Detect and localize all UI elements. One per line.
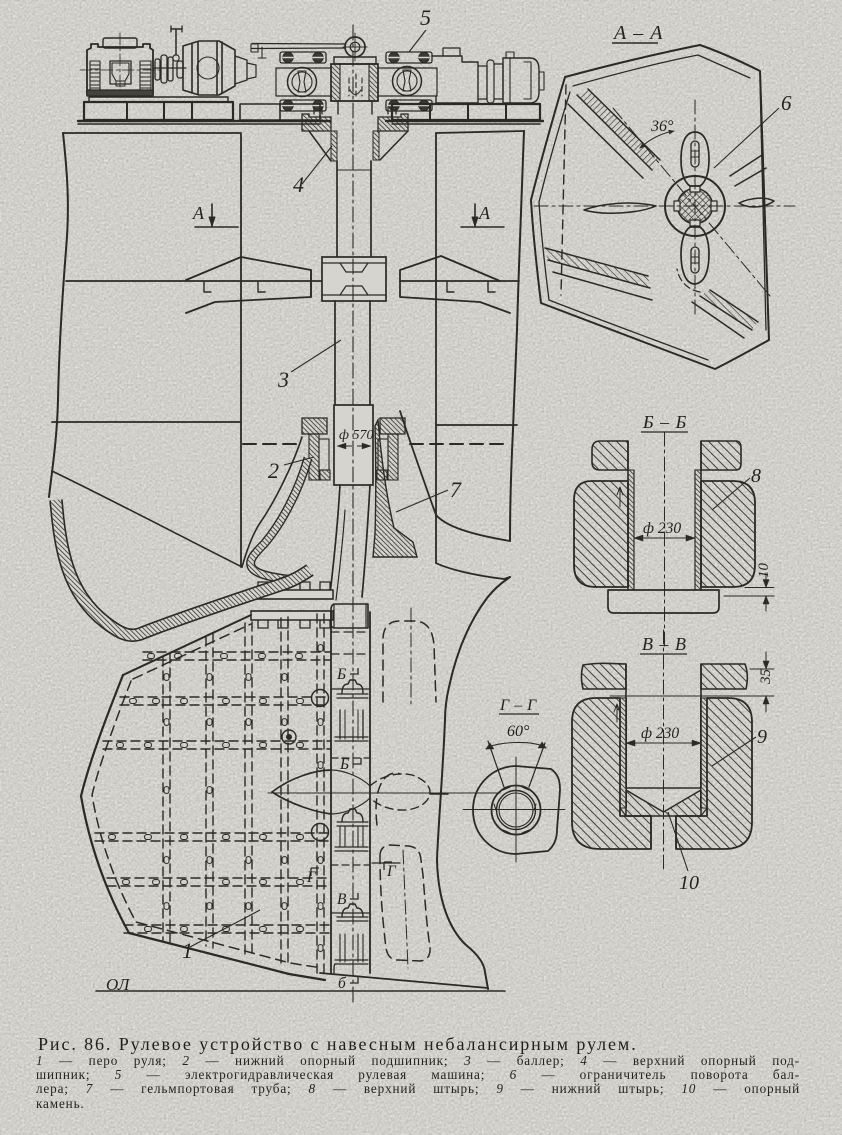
svg-text:2: 2 [268,458,279,483]
svg-text:ф 230: ф 230 [641,725,679,742]
svg-text:60°: 60° [507,723,530,740]
svg-text:4: 4 [293,172,304,197]
svg-text:А: А [192,203,205,223]
svg-text:В – В: В – В [642,634,687,654]
svg-text:5: 5 [420,5,431,30]
svg-text:36°: 36° [650,118,674,135]
svg-text:10: 10 [756,563,772,579]
svg-text:7: 7 [450,477,462,502]
svg-text:9: 9 [757,726,767,748]
svg-text:ф 570: ф 570 [339,428,373,443]
svg-text:1: 1 [182,938,193,963]
svg-text:Б – Б: Б – Б [642,412,687,432]
svg-text:Б: Б [339,756,349,773]
svg-text:Г – Г: Г – Г [499,697,537,714]
svg-text:3: 3 [277,367,289,392]
svg-text:ОЛ: ОЛ [106,975,131,994]
svg-text:б: б [338,975,347,992]
svg-text:В: В [337,891,347,908]
svg-text:А: А [478,203,491,223]
svg-text:10: 10 [679,872,699,894]
svg-text:Б: Б [336,666,346,683]
svg-text:35: 35 [758,669,774,686]
svg-text:ф 230: ф 230 [643,520,681,537]
svg-text:Г: Г [386,863,397,880]
svg-text:А – А: А – А [612,22,663,44]
svg-text:8: 8 [751,465,761,487]
svg-text:6: 6 [781,91,792,115]
